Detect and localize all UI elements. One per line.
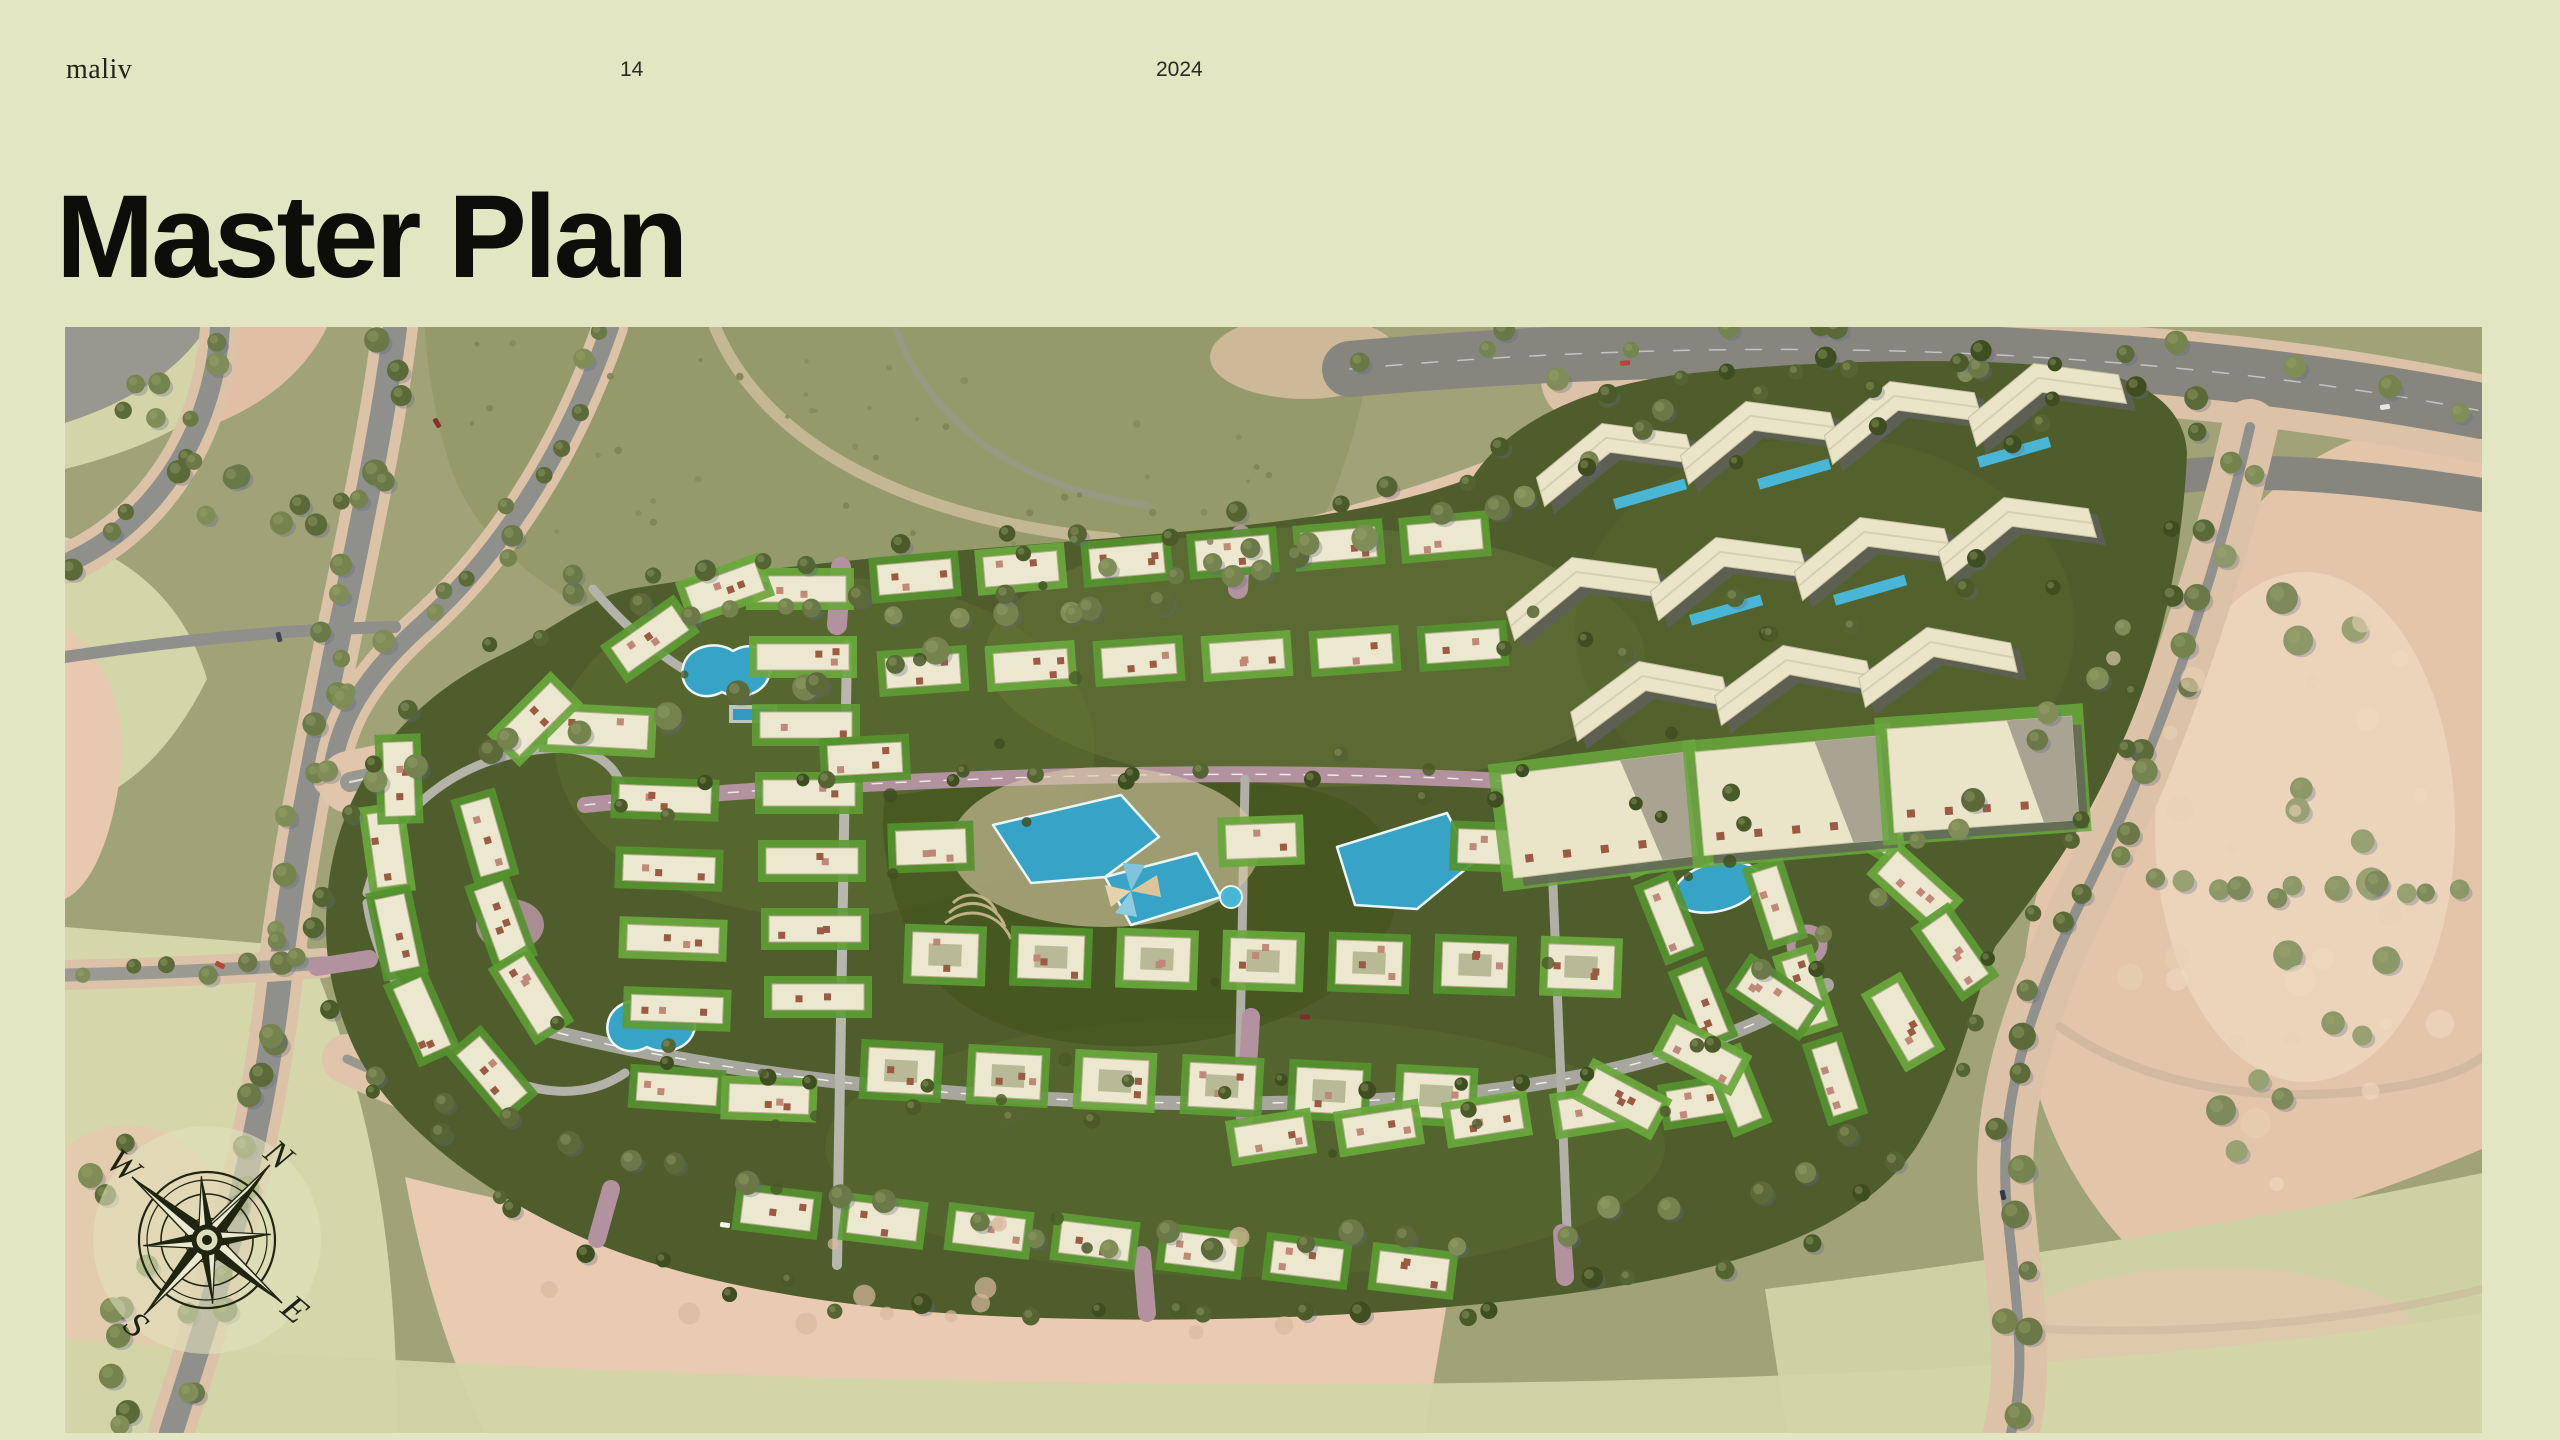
master-plan-map: N E S W (65, 327, 2482, 1433)
year-label: 2024 (1156, 58, 1203, 82)
brochure-page: maliv 14 2024 Master Plan (0, 0, 2560, 1440)
master-plan-rendering: N E S W (65, 327, 2482, 1433)
brand-logo: maliv (66, 54, 132, 86)
page-title: Master Plan (56, 178, 685, 296)
page-number: 14 (620, 58, 643, 82)
